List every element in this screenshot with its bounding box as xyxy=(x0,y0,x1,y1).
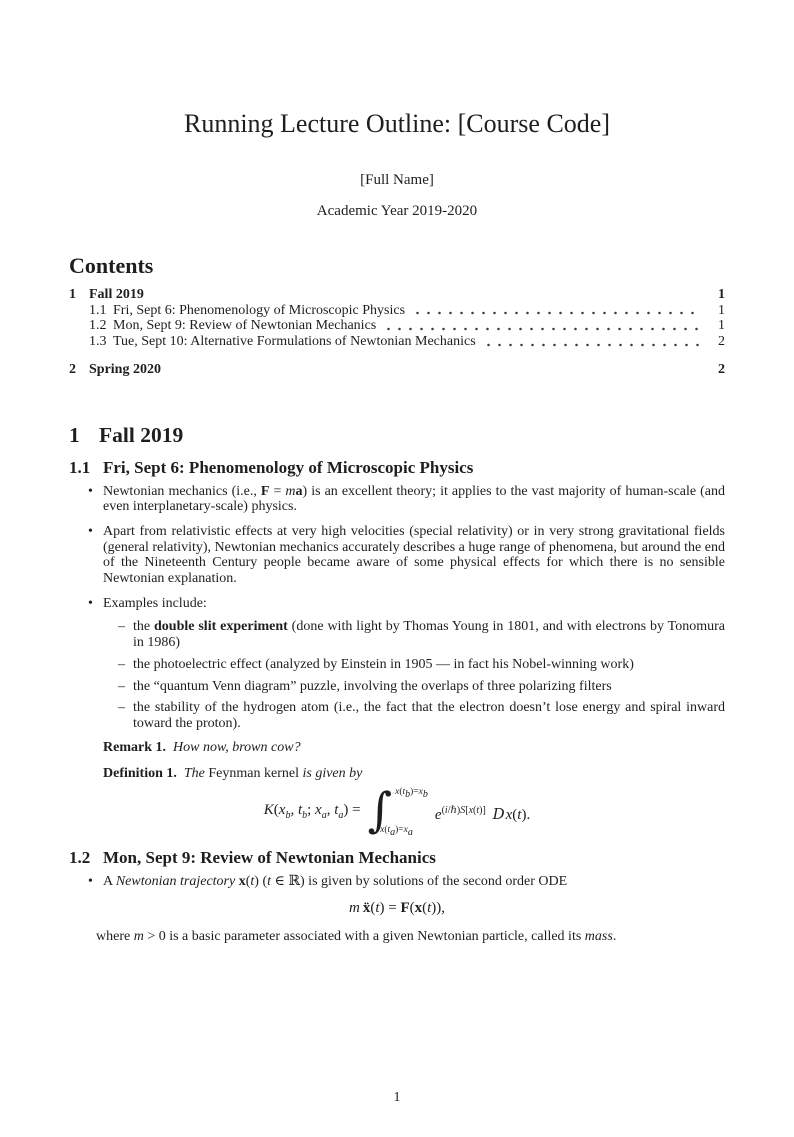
academic-year: Academic Year 2019-2020 xyxy=(69,202,725,220)
toc-title: Fall 2019 xyxy=(89,287,144,303)
toc-page-number: 2 xyxy=(711,334,725,350)
toc-leader-dots xyxy=(381,318,701,334)
equation-lhs: K(xb, tb; xa, ta) = xyxy=(264,803,361,824)
toc-number: 1.2 xyxy=(89,318,113,334)
remark-label: Remark 1. xyxy=(103,740,166,755)
sub-bullet-text: the stability of the hydrogen atom (i.e.… xyxy=(133,700,725,731)
definition-label: Definition 1. xyxy=(103,766,177,781)
remark-1: Remark 1.How now, brown cow? xyxy=(103,740,725,756)
definition-body: The Feynman kernel is given by xyxy=(184,766,362,781)
bullet-text: Examples include: xyxy=(103,596,725,612)
sub-bullet-item: – the “quantum Venn diagram” puzzle, inv… xyxy=(69,679,725,695)
toc-entry-1-1[interactable]: 1.1 Fri, Sept 6: Phenomenology of Micros… xyxy=(69,303,725,319)
dash-icon: – xyxy=(118,619,133,650)
sub-bullet-text: the photoelectric effect (analyzed by Ei… xyxy=(133,657,725,673)
continuation-paragraph: where m > 0 is a basic parameter associa… xyxy=(96,929,725,945)
sub-bullet-item: – the stability of the hydrogen atom (i.… xyxy=(69,700,725,731)
subsection-number: 1.1 xyxy=(69,458,103,478)
sub-bullet-text: the “quantum Venn diagram” puzzle, invol… xyxy=(133,679,725,695)
bullet-text: Apart from relativistic effects at very … xyxy=(103,524,725,587)
toc-page-number: 1 xyxy=(711,303,725,319)
equation-feynman-kernel: K(xb, tb; xa, ta) = ∫ x(tb)=xb x(ta)=xa … xyxy=(69,786,725,840)
toc-entry-fall-2019[interactable]: 1 Fall 2019 1 xyxy=(69,287,725,303)
toc-leader-dots xyxy=(410,303,701,319)
author-name: [Full Name] xyxy=(69,171,725,189)
toc-title: Spring 2020 xyxy=(89,362,161,378)
toc-page-number: 2 xyxy=(711,362,725,378)
subsection-number: 1.2 xyxy=(69,848,103,868)
toc-title: Fri, Sept 6: Phenomenology of Microscopi… xyxy=(113,303,405,319)
subsection-title: Fri, Sept 6: Phenomenology of Microscopi… xyxy=(103,458,473,478)
page-number: 1 xyxy=(0,1090,794,1106)
toc-title: Tue, Sept 10: Alternative Formulations o… xyxy=(113,334,476,350)
subsection-1-1-body: • Newtonian mechanics (i.e., F = ma) is … xyxy=(69,484,725,841)
toc-entry-spring-2020[interactable]: 2 Spring 2020 2 xyxy=(69,362,725,378)
subsection-title: Mon, Sept 9: Review of Newtonian Mechani… xyxy=(103,848,436,868)
sub-bullet-item: – the double slit experiment (done with … xyxy=(69,619,725,650)
dash-icon: – xyxy=(118,657,133,673)
section-heading-fall-2019: 1 Fall 2019 xyxy=(69,423,725,448)
toc-number: 1 xyxy=(69,287,89,303)
table-of-contents: 1 Fall 2019 1 1.1 Fri, Sept 6: Phenomeno… xyxy=(69,287,725,378)
remark-body: How now, brown cow? xyxy=(173,740,301,755)
equation-newton-second-law: m ẍ(t) = F(x(t)), xyxy=(69,900,725,916)
bullet-item: • Examples include: xyxy=(69,596,725,612)
bullet-item: • Apart from relativistic effects at ver… xyxy=(69,524,725,587)
bullet-icon: • xyxy=(88,524,103,587)
subsection-heading-1-2: 1.2 Mon, Sept 9: Review of Newtonian Mec… xyxy=(69,848,725,868)
dash-icon: – xyxy=(118,679,133,695)
bullet-text: Newtonian mechanics (i.e., F = ma) is an… xyxy=(103,484,725,515)
bullet-item: • Newtonian mechanics (i.e., F = ma) is … xyxy=(69,484,725,515)
section-title: Fall 2019 xyxy=(99,423,183,448)
subsection-1-2-body: • A Newtonian trajectory x(t) (t ∈ ℝ) is… xyxy=(69,874,725,944)
bullet-item: • A Newtonian trajectory x(t) (t ∈ ℝ) is… xyxy=(69,874,725,890)
toc-number: 2 xyxy=(69,362,89,378)
sub-bullet-text: the double slit experiment (done with li… xyxy=(133,619,725,650)
integral-upper-limit: x(tb)=xb xyxy=(395,788,428,800)
toc-page-number: 1 xyxy=(711,287,725,303)
document-title: Running Lecture Outline: [Course Code] xyxy=(69,109,725,139)
bullet-icon: • xyxy=(88,874,103,890)
section-number: 1 xyxy=(69,423,99,448)
toc-entry-1-2[interactable]: 1.2 Mon, Sept 9: Review of Newtonian Mec… xyxy=(69,318,725,334)
toc-page-number: 1 xyxy=(711,318,725,334)
toc-number: 1.1 xyxy=(89,303,113,319)
bullet-icon: • xyxy=(88,596,103,612)
document-page: Running Lecture Outline: [Course Code] [… xyxy=(0,109,794,1137)
bullet-icon: • xyxy=(88,484,103,515)
definition-1: Definition 1.The Feynman kernel is given… xyxy=(103,766,725,782)
integral-limits: x(tb)=xb x(ta)=xa xyxy=(393,788,428,838)
sub-bullet-item: – the photoelectric effect (analyzed by … xyxy=(69,657,725,673)
bullet-text: A Newtonian trajectory x(t) (t ∈ ℝ) is g… xyxy=(103,874,725,890)
toc-title: Mon, Sept 9: Review of Newtonian Mechani… xyxy=(113,318,376,334)
title-block: Running Lecture Outline: [Course Code] [… xyxy=(69,109,725,220)
toc-leader-dots xyxy=(481,334,701,350)
subsection-heading-1-1: 1.1 Fri, Sept 6: Phenomenology of Micros… xyxy=(69,458,725,478)
contents-heading: Contents xyxy=(69,253,725,279)
equation-integrand: e(i/ℏ)S[x(t)] Dx(t). xyxy=(435,803,530,824)
toc-entry-1-3[interactable]: 1.3 Tue, Sept 10: Alternative Formulatio… xyxy=(69,334,725,350)
integral-lower-limit: x(ta)=xa xyxy=(380,826,428,838)
dash-icon: – xyxy=(118,700,133,731)
toc-number: 1.3 xyxy=(89,334,113,350)
